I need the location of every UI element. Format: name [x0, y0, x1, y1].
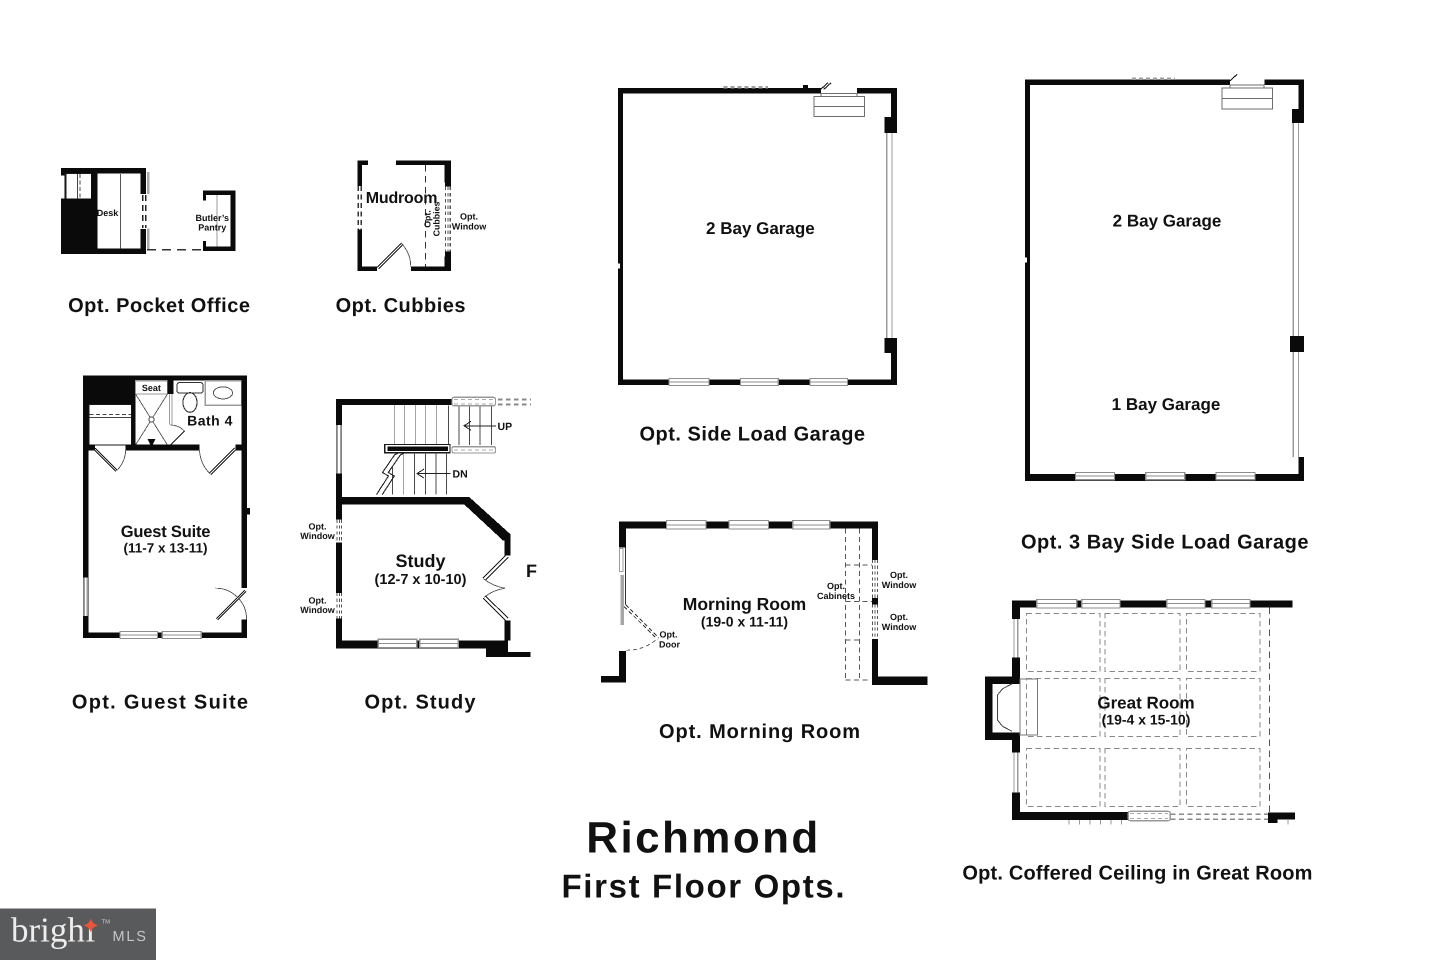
svg-text:Opt.: Opt.	[660, 630, 678, 640]
svg-text:2 Bay Garage: 2 Bay Garage	[1113, 212, 1222, 231]
svg-text:Opt. Morning Room: Opt. Morning Room	[659, 721, 861, 743]
svg-text:Window: Window	[300, 605, 335, 615]
svg-text:Cabinets: Cabinets	[817, 591, 855, 601]
svg-text:Great Room: Great Room	[1097, 694, 1194, 713]
svg-text:Morning Room: Morning Room	[683, 594, 806, 614]
svg-text:1 Bay Garage: 1 Bay Garage	[1112, 395, 1221, 414]
svg-text:Door: Door	[659, 640, 680, 650]
svg-text:UP: UP	[498, 421, 513, 433]
svg-text:Richmond: Richmond	[586, 814, 818, 863]
svg-text:DN: DN	[453, 469, 468, 481]
svg-text:(19-4 x 15-10): (19-4 x 15-10)	[1102, 712, 1191, 728]
svg-text:Cubbies: Cubbies	[432, 202, 442, 237]
svg-text:Opt. Guest Suite: Opt. Guest Suite	[72, 692, 249, 714]
svg-text:Window: Window	[882, 622, 917, 632]
svg-text:Pantry: Pantry	[198, 223, 226, 233]
svg-text:Opt. Pocket Office: Opt. Pocket Office	[68, 295, 250, 317]
svg-text:Opt.: Opt.	[890, 570, 908, 580]
svg-text:Opt. 3 Bay Side Load Garage: Opt. 3 Bay Side Load Garage	[1021, 532, 1309, 554]
svg-text:Bath 4: Bath 4	[187, 413, 233, 429]
svg-text:Opt.: Opt.	[460, 212, 478, 222]
svg-text:2 Bay Garage: 2 Bay Garage	[706, 219, 815, 238]
svg-text:Opt. Study: Opt. Study	[364, 692, 476, 714]
svg-text:Opt.: Opt.	[827, 581, 845, 591]
svg-text:Butler’s: Butler’s	[196, 213, 230, 223]
svg-text:(19-0 x 11-11): (19-0 x 11-11)	[701, 614, 788, 630]
svg-text:MLS: MLS	[113, 929, 148, 945]
svg-text:Window: Window	[452, 222, 487, 232]
svg-text:Desk: Desk	[97, 208, 120, 218]
svg-text:First Floor Opts.: First Floor Opts.	[562, 868, 845, 905]
svg-text:Window: Window	[300, 531, 335, 541]
svg-text:(12-7 x 10-10): (12-7 x 10-10)	[375, 572, 467, 588]
svg-text:Mudroom: Mudroom	[366, 190, 437, 207]
svg-text:Opt.: Opt.	[890, 612, 908, 622]
svg-text:Seat: Seat	[142, 383, 161, 393]
svg-text:Opt.: Opt.	[309, 522, 327, 532]
svg-text:brigh: brigh	[11, 911, 85, 950]
svg-text:Opt. Coffered Ceiling in Great: Opt. Coffered Ceiling in Great Room	[962, 863, 1312, 885]
svg-text:F: F	[526, 561, 537, 581]
svg-text:Study: Study	[395, 551, 445, 571]
svg-text:(11-7 x 13-11): (11-7 x 13-11)	[123, 541, 207, 556]
svg-text:Opt.: Opt.	[309, 596, 327, 606]
svg-text:Guest Suite: Guest Suite	[121, 523, 211, 541]
svg-text:Window: Window	[882, 580, 917, 590]
svg-text:Opt. Side Load Garage: Opt. Side Load Garage	[639, 424, 865, 446]
svg-text:Opt. Cubbies: Opt. Cubbies	[336, 295, 466, 317]
svg-text:TM: TM	[102, 919, 111, 926]
